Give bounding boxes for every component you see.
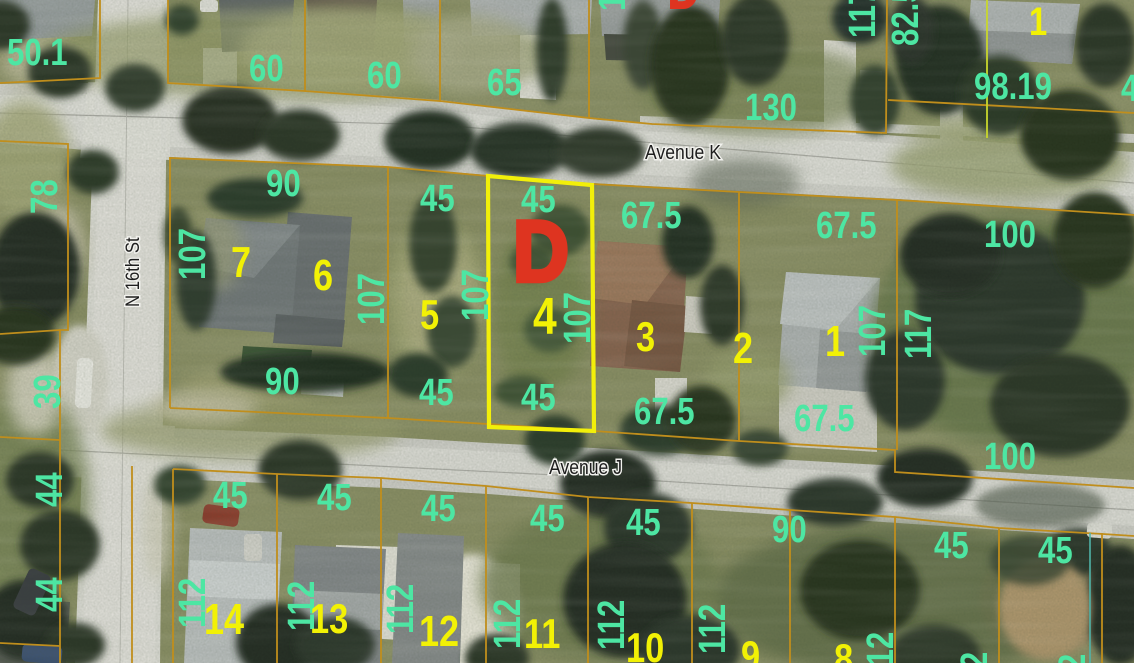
svg-text:90: 90 — [265, 361, 300, 403]
svg-text:7: 7 — [231, 238, 251, 287]
svg-text:45: 45 — [530, 498, 565, 540]
svg-text:1: 1 — [825, 317, 845, 366]
svg-text:67.5: 67.5 — [621, 195, 682, 237]
svg-text:100: 100 — [984, 214, 1036, 256]
svg-text:112: 112 — [860, 632, 902, 663]
svg-text:112: 112 — [487, 599, 529, 649]
svg-text:112: 112 — [380, 584, 422, 634]
svg-text:107: 107 — [172, 228, 214, 280]
svg-text:90: 90 — [266, 163, 301, 205]
svg-text:39: 39 — [27, 374, 69, 409]
svg-text:45: 45 — [317, 477, 352, 519]
svg-text:9: 9 — [741, 633, 760, 663]
svg-text:67.5: 67.5 — [794, 398, 855, 440]
svg-text:112: 112 — [954, 652, 996, 663]
svg-text:78: 78 — [24, 179, 66, 214]
svg-text:1: 1 — [592, 0, 634, 11]
svg-text:5: 5 — [420, 292, 439, 339]
svg-text:10: 10 — [626, 625, 664, 663]
svg-text:13: 13 — [310, 596, 348, 643]
svg-text:60: 60 — [249, 48, 284, 90]
svg-text:107: 107 — [852, 305, 894, 357]
svg-text:N 16th St: N 16th St — [122, 237, 143, 307]
svg-text:112: 112 — [692, 604, 734, 654]
svg-text:3: 3 — [636, 314, 655, 361]
svg-text:90: 90 — [772, 509, 807, 551]
svg-text:Avenue K: Avenue K — [645, 141, 721, 163]
svg-text:D: D — [668, 0, 699, 20]
svg-text:67.5: 67.5 — [816, 205, 877, 247]
svg-text:45: 45 — [419, 372, 454, 414]
svg-text:117: 117 — [842, 0, 884, 38]
svg-text:2: 2 — [733, 324, 753, 373]
svg-text:12: 12 — [419, 607, 459, 656]
svg-text:117: 117 — [898, 309, 940, 359]
svg-text:82.5: 82.5 — [885, 0, 927, 46]
svg-text:45: 45 — [420, 178, 455, 220]
svg-text:107: 107 — [455, 269, 497, 321]
svg-text:8: 8 — [834, 636, 853, 663]
svg-text:6: 6 — [313, 251, 333, 300]
svg-text:45: 45 — [421, 488, 456, 530]
svg-text:1: 1 — [1029, 0, 1047, 44]
svg-text:45: 45 — [626, 502, 661, 544]
svg-text:107: 107 — [351, 273, 393, 325]
svg-text:45: 45 — [213, 475, 248, 517]
svg-text:50.1: 50.1 — [7, 32, 68, 74]
svg-text:65: 65 — [487, 62, 522, 104]
svg-text:14: 14 — [204, 595, 245, 644]
svg-text:45: 45 — [934, 525, 969, 567]
svg-text:49: 49 — [1121, 68, 1134, 110]
svg-text:130: 130 — [745, 87, 797, 129]
svg-text:45: 45 — [521, 377, 556, 419]
svg-text:45: 45 — [1038, 530, 1073, 572]
svg-text:98.19: 98.19 — [974, 66, 1052, 108]
svg-text:D: D — [513, 204, 569, 300]
svg-text:67.5: 67.5 — [634, 391, 695, 433]
svg-text:112: 112 — [1052, 654, 1094, 663]
svg-text:60: 60 — [367, 55, 402, 97]
svg-text:11: 11 — [524, 611, 560, 658]
svg-text:100: 100 — [984, 436, 1036, 478]
svg-text:Avenue J: Avenue J — [549, 456, 622, 478]
svg-text:44: 44 — [29, 577, 71, 612]
svg-text:44: 44 — [29, 472, 71, 507]
